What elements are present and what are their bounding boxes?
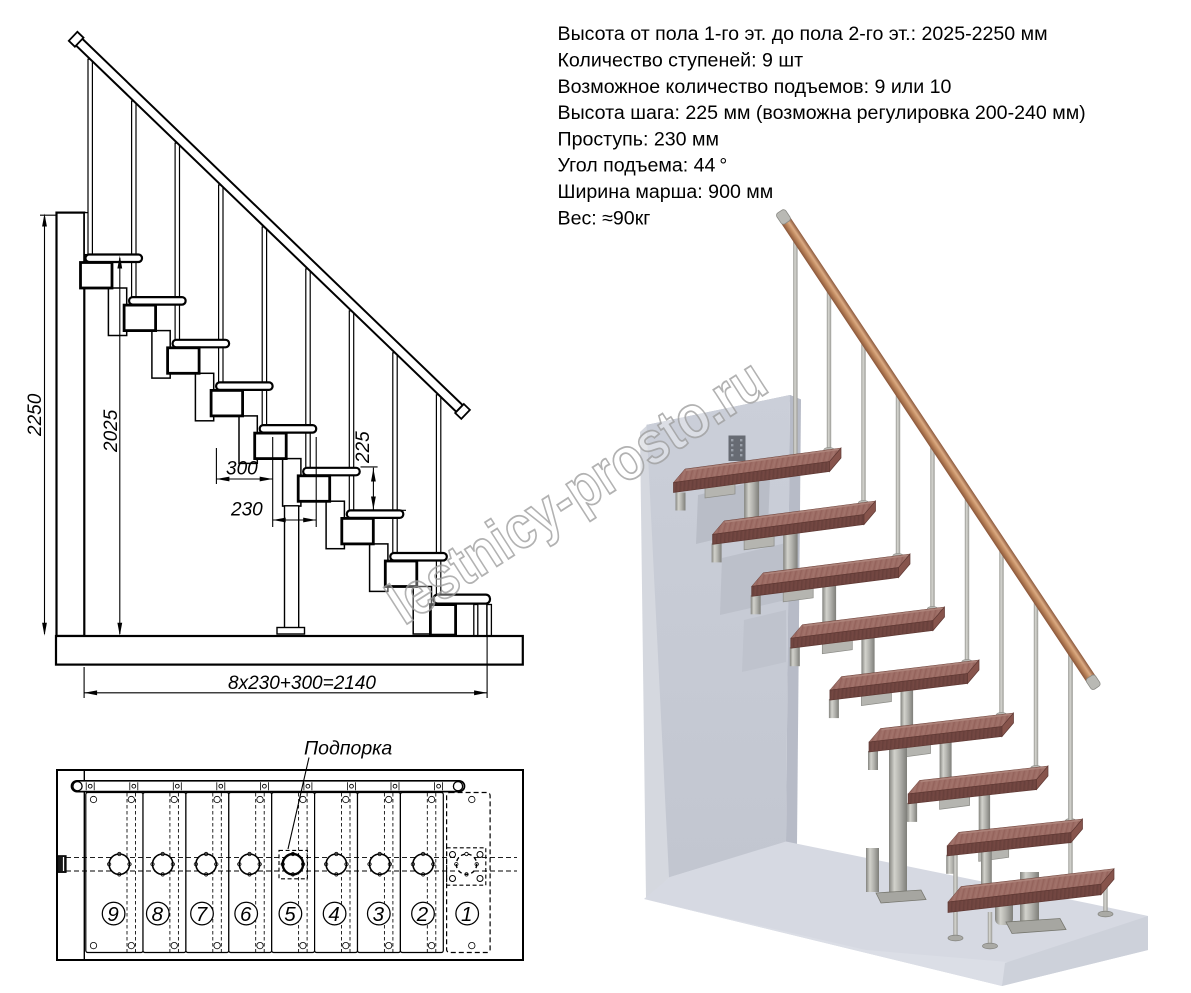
svg-text:6: 6 [240,903,252,926]
svg-text:2025: 2025 [101,409,122,453]
svg-text:4: 4 [328,903,339,926]
svg-text:Проступь: 230 мм: Проступь: 230 мм [558,128,719,150]
svg-text:Ширина марша: 900 мм: Ширина марша: 900 мм [558,181,774,203]
svg-text:225: 225 [353,431,374,464]
svg-text:8: 8 [152,903,164,926]
svg-text:2: 2 [416,903,429,926]
svg-text:Подпорка: Подпорка [304,738,392,760]
svg-text:3: 3 [373,903,385,926]
svg-text:Количество ступеней: 9 шт: Количество ступеней: 9 шт [558,50,804,72]
svg-text:2250: 2250 [25,393,46,437]
svg-text:1: 1 [461,903,472,926]
svg-text:Возможное количество подъемов:: Возможное количество подъемов: 9 или 10 [558,76,952,98]
svg-text:Высота от пола 1-го эт. до пол: Высота от пола 1-го эт. до пола 2-го эт.… [558,23,1048,45]
svg-text:Угол подъема: 44 °: Угол подъема: 44 ° [558,155,728,177]
svg-text:300: 300 [226,459,258,480]
svg-text:Вес: ≈90кг: Вес: ≈90кг [558,207,651,229]
svg-text:5: 5 [284,903,296,926]
svg-text:7: 7 [196,903,209,926]
svg-text:8x230+300=2140: 8x230+300=2140 [228,673,376,694]
svg-text:230: 230 [230,500,263,521]
svg-text:Высота шага: 225 мм (возможна: Высота шага: 225 мм (возможна регулировк… [558,102,1086,124]
svg-text:9: 9 [107,903,118,926]
